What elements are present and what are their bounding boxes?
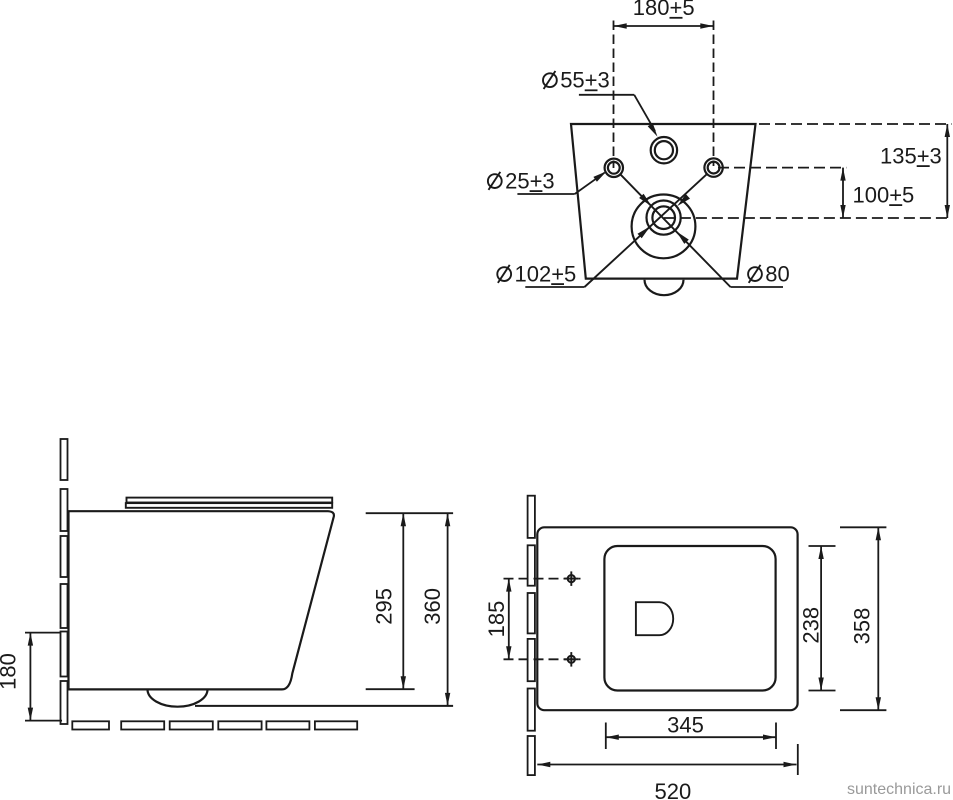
svg-text:suntechnica.ru: suntechnica.ru [847,781,951,798]
svg-text:80: 80 [765,261,789,286]
svg-text:135+3: 135+3 [880,143,942,168]
svg-text:358: 358 [850,608,875,645]
svg-text:55+3: 55+3 [560,68,610,93]
svg-text:180: 180 [0,653,21,690]
svg-text:238: 238 [799,607,824,644]
svg-text:295: 295 [372,588,397,625]
svg-text:25+3: 25+3 [505,168,555,193]
svg-text:185: 185 [484,601,509,638]
svg-text:100+5: 100+5 [853,182,915,207]
svg-text:102+5: 102+5 [515,261,577,286]
svg-text:520: 520 [655,779,692,800]
svg-text:180+5: 180+5 [633,0,695,20]
svg-text:360: 360 [420,588,445,625]
svg-text:345: 345 [667,712,704,737]
